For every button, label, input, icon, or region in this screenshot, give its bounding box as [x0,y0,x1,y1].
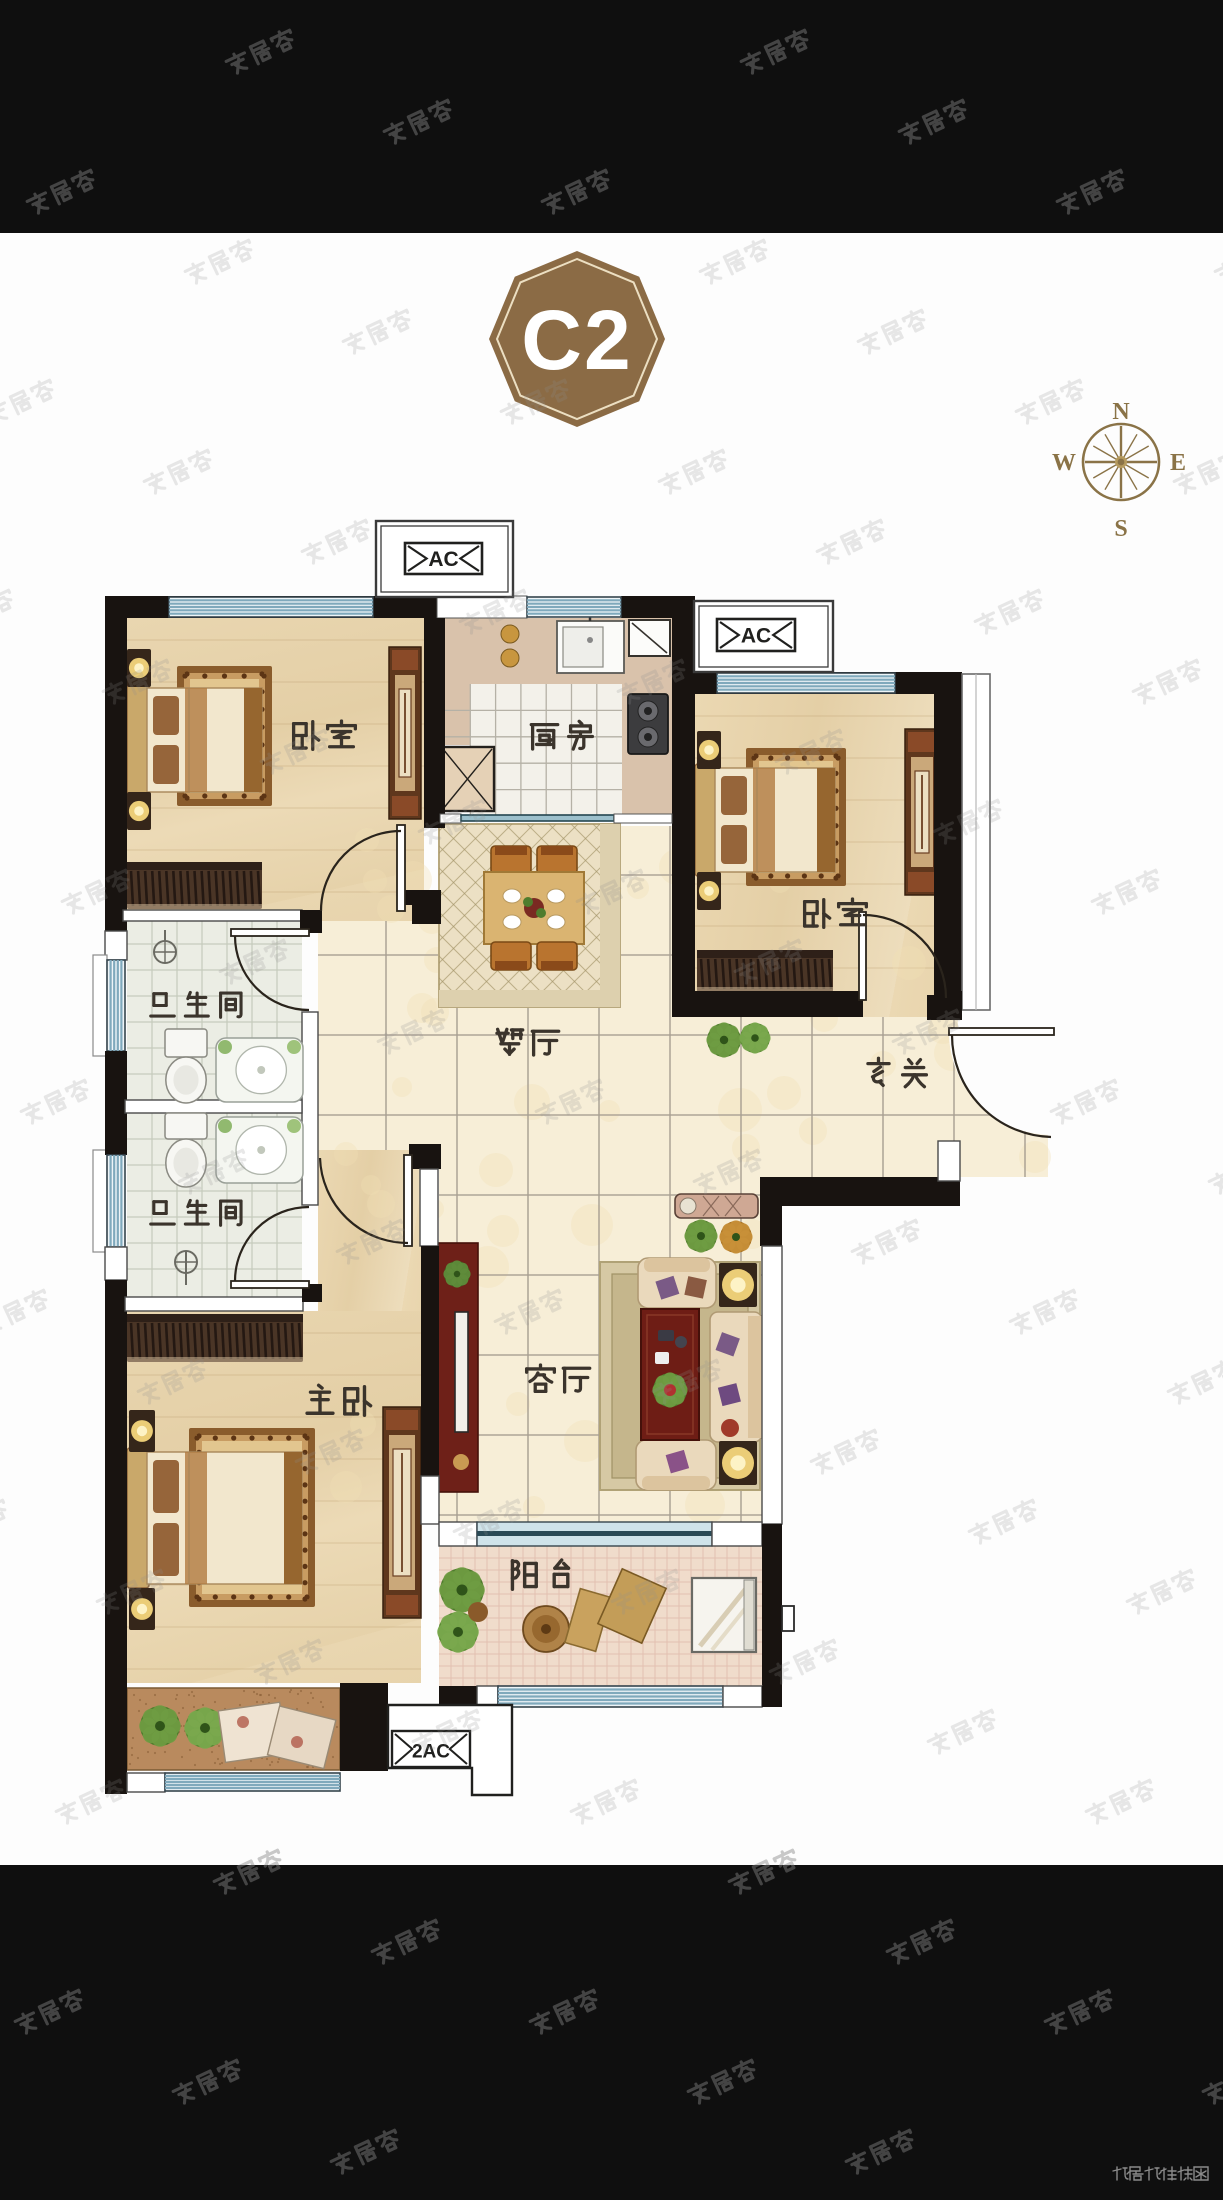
svg-text:E: E [1170,450,1186,476]
svg-text:C2: C2 [521,293,632,387]
svg-text:AC: AC [741,625,771,648]
svg-text:AC: AC [428,548,458,571]
svg-text:S: S [1114,516,1127,542]
svg-text:W: W [1052,450,1076,476]
svg-text:N: N [1112,399,1130,425]
